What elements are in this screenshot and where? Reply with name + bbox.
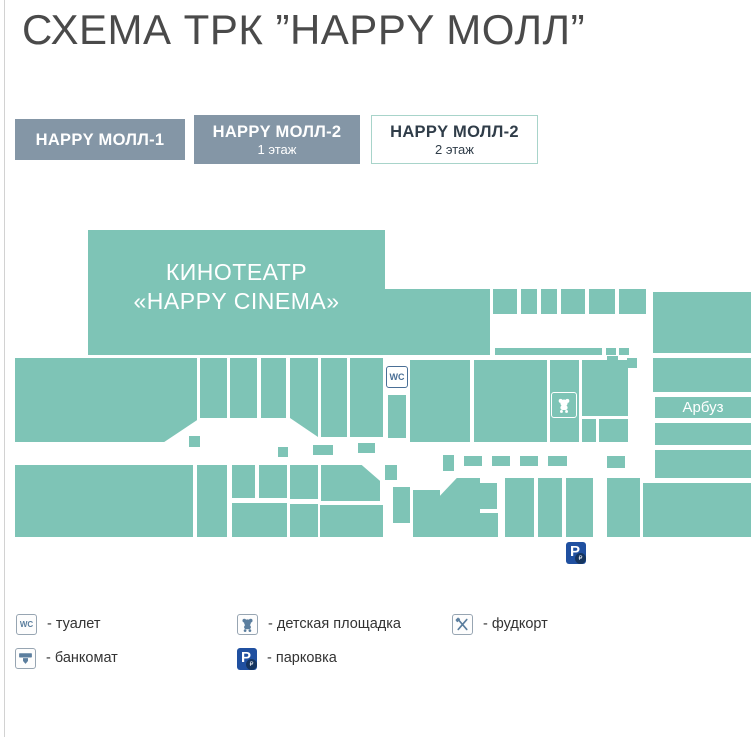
map-block bbox=[619, 348, 629, 355]
foodcourt-icon bbox=[452, 614, 473, 635]
atm-icon bbox=[15, 648, 36, 669]
map-block bbox=[385, 465, 397, 480]
map-block bbox=[474, 360, 547, 442]
map-block bbox=[653, 292, 751, 353]
map-block bbox=[15, 358, 197, 442]
cinema-line1: КИНОТЕАТР bbox=[88, 258, 385, 287]
map-block bbox=[358, 443, 375, 453]
map-block bbox=[278, 447, 288, 457]
parking-icon: P ₽ bbox=[237, 648, 257, 670]
legend-item-playground: - детская площадка bbox=[237, 614, 401, 635]
map-block bbox=[471, 483, 497, 509]
wc-icon: WC bbox=[16, 614, 37, 635]
map-block bbox=[393, 487, 410, 523]
map-block bbox=[259, 465, 287, 498]
map-block bbox=[655, 450, 751, 478]
map-block bbox=[643, 483, 751, 537]
map-block bbox=[653, 358, 751, 392]
map-block bbox=[197, 465, 227, 537]
map-block bbox=[15, 465, 193, 537]
map-cinema-label: КИНОТЕАТР «HAPPY CINEMA» bbox=[88, 258, 385, 316]
map-block bbox=[599, 419, 628, 442]
parking-sub: ₽ bbox=[246, 659, 257, 670]
legend-label: - фудкорт bbox=[483, 614, 548, 635]
map-block bbox=[440, 513, 498, 537]
cinema-line2: «HAPPY CINEMA» bbox=[88, 287, 385, 316]
map-block bbox=[388, 395, 406, 438]
map-block bbox=[589, 289, 615, 314]
playground-icon bbox=[551, 392, 577, 418]
map-block bbox=[232, 503, 287, 537]
map-block bbox=[464, 456, 482, 466]
map-block bbox=[230, 358, 257, 418]
map-block bbox=[290, 504, 318, 537]
map-block bbox=[607, 478, 640, 537]
map-block bbox=[492, 456, 510, 466]
map-block bbox=[261, 358, 286, 418]
map-block bbox=[313, 445, 333, 455]
map-block bbox=[521, 289, 537, 314]
map-block bbox=[443, 455, 454, 471]
parking-icon: P ₽ bbox=[566, 542, 586, 564]
map-block bbox=[320, 505, 383, 537]
map-block bbox=[561, 289, 585, 314]
map-block bbox=[582, 419, 596, 442]
map-block bbox=[520, 456, 538, 466]
map-block bbox=[627, 358, 637, 368]
playground-icon bbox=[237, 614, 258, 635]
map-block bbox=[582, 360, 628, 416]
map-store-arbuz: Арбуз bbox=[655, 397, 751, 418]
map-block bbox=[606, 348, 616, 355]
map-block bbox=[383, 289, 490, 355]
legend-label: - банкомат bbox=[46, 648, 118, 669]
map-block bbox=[232, 465, 255, 498]
map-block bbox=[321, 465, 380, 501]
map-block bbox=[541, 289, 557, 314]
map-block bbox=[410, 360, 470, 442]
legend-item-foodcourt: - фудкорт bbox=[452, 614, 548, 635]
mall-scheme-page: СХЕМА ТРК ”HAPPY МОЛЛ” HAPPY МОЛЛ-1 HAPP… bbox=[0, 0, 751, 737]
floor-map: КИНОТЕАТР «HAPPY CINEMA» Арбуз WC P ₽ bbox=[0, 0, 751, 600]
map-block bbox=[655, 423, 751, 445]
map-block bbox=[189, 436, 200, 447]
map-block bbox=[607, 456, 625, 468]
map-block bbox=[290, 358, 318, 437]
legend-item-atm: - банкомат bbox=[15, 648, 118, 669]
map-block bbox=[566, 478, 593, 537]
map-block bbox=[200, 358, 227, 418]
map-block bbox=[538, 478, 562, 537]
wc-icon: WC bbox=[386, 366, 408, 388]
map-block bbox=[548, 456, 567, 466]
legend-item-toilet: WC - туалет bbox=[16, 614, 101, 635]
map-block bbox=[413, 490, 440, 537]
map-block bbox=[321, 358, 347, 437]
map-block bbox=[619, 289, 646, 314]
map-block bbox=[290, 465, 318, 499]
legend-item-parking: P ₽ - парковка bbox=[237, 648, 337, 670]
map-block bbox=[493, 289, 517, 314]
map-block bbox=[350, 358, 383, 437]
legend-label: - туалет bbox=[47, 614, 101, 635]
parking-sub: ₽ bbox=[575, 553, 586, 564]
bear-glyph bbox=[555, 396, 573, 414]
map-block bbox=[495, 348, 602, 355]
legend-label: - детская площадка bbox=[268, 614, 401, 635]
legend-label: - парковка bbox=[267, 648, 337, 669]
map-block bbox=[505, 478, 534, 537]
